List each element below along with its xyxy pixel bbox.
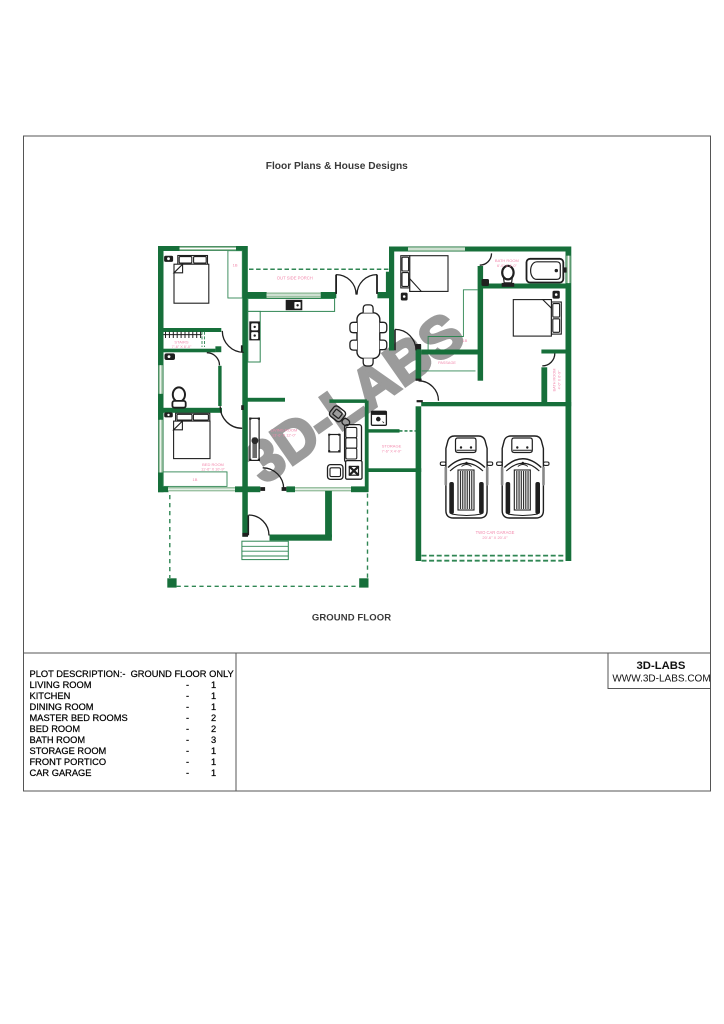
svg-text:11'-6" X 10'-9": 11'-6" X 10'-9" (201, 468, 225, 472)
svg-text:STORAGE ROOM: STORAGE ROOM (30, 746, 107, 756)
svg-text:MASTER BED ROOMS: MASTER BED ROOMS (30, 713, 128, 723)
svg-text:-: - (186, 691, 189, 701)
svg-text:GROUND FLOOR: GROUND FLOOR (312, 613, 391, 624)
svg-text:3D-LABS: 3D-LABS (637, 660, 686, 672)
svg-text:7'-6" X 8'-0": 7'-6" X 8'-0" (172, 345, 192, 349)
svg-text:PLOT DESCRIPTION:- GROUND FLO: PLOT DESCRIPTION:- GROUND FLOOR ONLY (30, 669, 234, 679)
svg-text:BED ROOM: BED ROOM (202, 462, 224, 467)
svg-text:-: - (186, 713, 189, 723)
svg-text:6'-0" X 4'-0": 6'-0" X 4'-0" (497, 264, 517, 268)
svg-text:1: 1 (211, 702, 216, 712)
svg-text:LIVING ROOM: LIVING ROOM (271, 428, 298, 433)
svg-text:1B: 1B (462, 338, 467, 343)
svg-text:-: - (186, 768, 189, 778)
svg-text:1: 1 (211, 691, 216, 701)
svg-text:LIVING ROOM: LIVING ROOM (30, 680, 92, 690)
svg-text:2: 2 (211, 724, 216, 734)
svg-text:WWW.3D-LABS.COM: WWW.3D-LABS.COM (612, 673, 710, 684)
svg-text:CAR GARAGE: CAR GARAGE (30, 768, 92, 778)
svg-text:FRONT PORTICO: FRONT PORTICO (30, 757, 107, 767)
svg-text:1: 1 (211, 768, 216, 778)
svg-text:KITCHEN: KITCHEN (30, 691, 71, 701)
svg-text:13'-6" X 12'-0": 13'-6" X 12'-0" (272, 433, 297, 437)
svg-text:BATH ROOM: BATH ROOM (553, 369, 557, 392)
svg-text:1B: 1B (233, 263, 238, 268)
svg-text:-: - (186, 724, 189, 734)
svg-text:1B: 1B (193, 477, 198, 482)
svg-text:-: - (186, 735, 189, 745)
svg-text:1: 1 (211, 757, 216, 767)
svg-text:3: 3 (211, 735, 216, 745)
svg-text:BED ROOM: BED ROOM (30, 724, 81, 734)
svg-text:-: - (186, 680, 189, 690)
svg-text:STAIRS: STAIRS (174, 339, 188, 344)
svg-text:OUT SIDE PORCH: OUT SIDE PORCH (277, 276, 313, 281)
svg-text:2: 2 (211, 713, 216, 723)
svg-text:4'-0" X 6'-9": 4'-0" X 6'-9" (558, 370, 562, 389)
svg-text:Floor Plans & House Designs: Floor Plans & House Designs (266, 161, 408, 172)
svg-text:-: - (186, 746, 189, 756)
svg-text:-: - (186, 757, 189, 767)
svg-text:7'-6" X 4'-9": 7'-6" X 4'-9" (382, 449, 402, 453)
svg-text:-: - (186, 702, 189, 712)
svg-text:PASSAGE: PASSAGE (438, 361, 456, 365)
svg-text:20'-6" X 20'-0": 20'-6" X 20'-0" (482, 535, 508, 540)
svg-text:1: 1 (211, 680, 216, 690)
svg-text:BATH ROOM: BATH ROOM (495, 258, 519, 263)
svg-text:STORAGE: STORAGE (382, 444, 402, 449)
svg-text:BATH ROOM: BATH ROOM (30, 735, 86, 745)
svg-text:1: 1 (211, 746, 216, 756)
svg-text:DINING ROOM: DINING ROOM (30, 702, 94, 712)
